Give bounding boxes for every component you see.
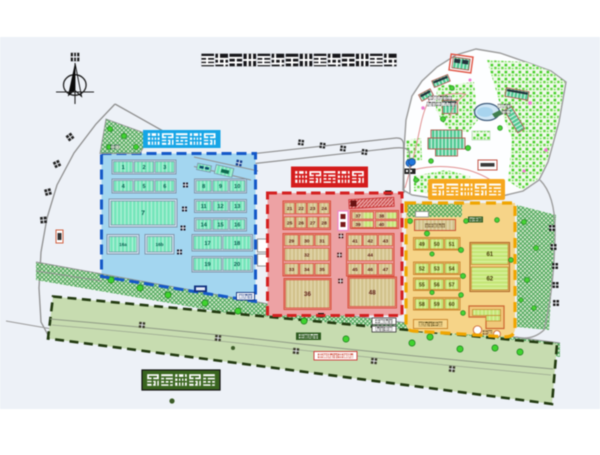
svg-text:47: 47 bbox=[383, 267, 389, 273]
svg-text:57: 57 bbox=[449, 282, 455, 288]
svg-text:41: 41 bbox=[352, 238, 358, 244]
svg-text:29: 29 bbox=[289, 238, 295, 244]
svg-text:42: 42 bbox=[367, 238, 373, 244]
svg-text:54: 54 bbox=[449, 266, 455, 272]
svg-text:37: 37 bbox=[355, 214, 361, 220]
svg-text:28: 28 bbox=[321, 220, 327, 226]
svg-text:27: 27 bbox=[310, 220, 316, 226]
svg-text:11: 11 bbox=[201, 204, 207, 210]
svg-text:20: 20 bbox=[234, 262, 240, 268]
svg-text:19: 19 bbox=[204, 262, 210, 268]
svg-text:8: 8 bbox=[202, 184, 205, 190]
svg-text:30: 30 bbox=[304, 238, 310, 244]
svg-text:6: 6 bbox=[163, 184, 166, 190]
svg-text:44: 44 bbox=[367, 253, 373, 259]
svg-text:9: 9 bbox=[219, 184, 222, 190]
svg-text:22: 22 bbox=[298, 206, 304, 212]
svg-text:15: 15 bbox=[217, 223, 223, 229]
svg-text:43: 43 bbox=[383, 238, 389, 244]
svg-text:10: 10 bbox=[234, 184, 240, 190]
svg-text:40: 40 bbox=[379, 222, 385, 228]
svg-text:60: 60 bbox=[449, 302, 455, 308]
svg-text:14: 14 bbox=[201, 223, 208, 229]
svg-text:17: 17 bbox=[204, 241, 210, 247]
svg-text:62: 62 bbox=[486, 277, 493, 283]
svg-text:16b: 16b bbox=[156, 242, 164, 247]
svg-text:39: 39 bbox=[355, 222, 361, 228]
svg-text:46: 46 bbox=[367, 267, 373, 273]
svg-text:3: 3 bbox=[163, 165, 166, 171]
svg-text:2: 2 bbox=[142, 165, 145, 171]
svg-text:12: 12 bbox=[217, 204, 223, 210]
svg-text:33: 33 bbox=[289, 267, 295, 273]
svg-text:34: 34 bbox=[304, 267, 310, 273]
svg-text:21: 21 bbox=[287, 206, 293, 212]
svg-text:48: 48 bbox=[369, 289, 376, 296]
svg-text:35: 35 bbox=[319, 267, 325, 273]
svg-text:16a: 16a bbox=[119, 242, 127, 247]
svg-text:52: 52 bbox=[419, 266, 425, 272]
svg-text:31: 31 bbox=[319, 238, 325, 244]
svg-text:18: 18 bbox=[234, 241, 240, 247]
svg-text:23: 23 bbox=[310, 206, 316, 212]
svg-text:13: 13 bbox=[234, 204, 240, 210]
svg-text:56: 56 bbox=[434, 282, 440, 288]
svg-text:49: 49 bbox=[419, 242, 425, 248]
svg-text:36: 36 bbox=[304, 291, 311, 298]
svg-text:59: 59 bbox=[434, 302, 440, 308]
svg-text:58: 58 bbox=[419, 302, 425, 308]
svg-text:16: 16 bbox=[234, 223, 240, 229]
svg-text:26: 26 bbox=[298, 220, 304, 226]
svg-text:38: 38 bbox=[379, 214, 385, 220]
svg-text:51: 51 bbox=[449, 242, 455, 248]
svg-text:24: 24 bbox=[321, 206, 327, 212]
svg-text:53: 53 bbox=[434, 266, 440, 272]
svg-text:55: 55 bbox=[419, 282, 425, 288]
svg-text:32: 32 bbox=[304, 253, 310, 259]
svg-text:61: 61 bbox=[486, 252, 493, 258]
svg-text:25: 25 bbox=[287, 220, 293, 226]
svg-text:7: 7 bbox=[141, 210, 145, 217]
svg-text:45: 45 bbox=[352, 267, 358, 273]
svg-text:50: 50 bbox=[434, 242, 440, 248]
svg-text:5: 5 bbox=[142, 184, 145, 190]
svg-text:1: 1 bbox=[122, 165, 125, 171]
